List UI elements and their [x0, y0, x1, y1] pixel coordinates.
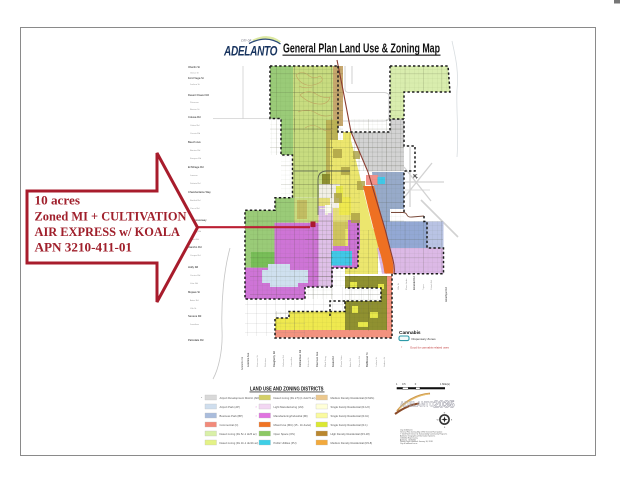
svg-text:Delicious: Delicious	[265, 357, 267, 367]
svg-text:Desert Living (DL 2.5) (1 du/2: Desert Living (DL 2.5) (1 du/2.5 ac)	[274, 396, 316, 400]
svg-text:Yucca Rd: Yucca Rd	[190, 208, 200, 210]
svg-text:Medium Density Residential (R-: Medium Density Residential (R-M/G)	[331, 396, 375, 400]
svg-text:Topaz: Topaz	[423, 284, 425, 290]
svg-text:Public Utilities (PU): Public Utilities (PU)	[274, 441, 297, 445]
svg-text:High Density Residential (R3-1: High Density Residential (R3-18)	[331, 432, 370, 436]
svg-text:Bovine St: Bovine St	[190, 108, 200, 111]
svg-text:Cactus Rd: Cactus Rd	[190, 274, 201, 277]
svg-text:Desert Flower Rd: Desert Flower Rd	[188, 93, 209, 97]
svg-text:Verbena Rd: Verbena Rd	[282, 355, 285, 367]
svg-text:AIR EXPRESS w/ KOALA: AIR EXPRESS w/ KOALA	[35, 225, 181, 239]
svg-text:Good for cannabis related uses: Good for cannabis related uses	[410, 346, 449, 350]
svg-text:Beech Ave: Beech Ave	[188, 140, 201, 144]
svg-text:Lilac Rd: Lilac Rd	[190, 283, 199, 285]
svg-text:General Plan Land Use & Zoning: General Plan Land Use & Zoning Map	[283, 41, 440, 56]
svg-text:Cannabis: Cannabis	[399, 330, 421, 336]
svg-text:Single Family Residential (R-1: Single Family Residential (R-1b)	[331, 414, 370, 418]
svg-text:Rancho Rd: Rancho Rd	[188, 245, 202, 249]
svg-text:Seneca Rd: Seneca Rd	[188, 314, 202, 318]
svg-text:Business Park (BP): Business Park (BP)	[220, 414, 243, 418]
svg-text:Dakota Rd: Dakota Rd	[190, 182, 201, 185]
svg-text:1 Mile(s): 1 Mile(s)	[440, 382, 450, 386]
svg-text:Dispensary Zones: Dispensary Zones	[412, 337, 437, 341]
svg-text:Mesa Linda: Mesa Linda	[406, 278, 408, 290]
svg-text:Desert Living (DL 5c-1 du/5 ac: Desert Living (DL 5c-1 du/5 ac)	[220, 432, 257, 436]
svg-text:Emerald Rd: Emerald Rd	[412, 276, 416, 290]
svg-text:Jonathan: Jonathan	[190, 323, 200, 326]
svg-text:Ford Vega St: Ford Vega St	[188, 76, 204, 80]
svg-text:Amethyst Rd: Amethyst Rd	[444, 287, 448, 302]
svg-text:W: W	[437, 419, 439, 421]
svg-text:Mojave St: Mojave St	[188, 290, 200, 294]
svg-text:Hermosa St: Hermosa St	[256, 355, 259, 367]
svg-text:Aster Rd: Aster Rd	[190, 299, 199, 302]
svg-text:Adelanto Rd: Adelanto Rd	[241, 356, 244, 370]
svg-text:Monte Vista: Monte Vista	[340, 355, 343, 367]
svg-text:Zoned MI + CULTIVATION: Zoned MI + CULTIVATION	[35, 209, 187, 223]
svg-text:Light Manufacturing (LM): Light Manufacturing (LM)	[274, 405, 304, 409]
svg-text:2035: 2035	[434, 399, 455, 411]
svg-text:Manufacturing/Industrial (MI): Manufacturing/Industrial (MI)	[274, 414, 308, 418]
svg-text:APN 3210-411-01: APN 3210-411-01	[35, 240, 133, 254]
svg-text:Aster Rd: Aster Rd	[349, 358, 352, 367]
svg-text:Palmdale Rd: Palmdale Rd	[188, 338, 204, 342]
svg-text:ADELANTO: ADELANTO	[223, 43, 277, 59]
svg-text:Desert Living (DL 1b-1 du/1b a: Desert Living (DL 1b-1 du/1b ac)	[220, 441, 259, 445]
svg-text:Mixed Use (MU) (15 - 1b du/ac): Mixed Use (MU) (15 - 1b du/ac)	[274, 423, 312, 427]
svg-text:Bellflower St: Bellflower St	[365, 352, 369, 367]
svg-text:Raccoon Ave: Raccoon Ave	[315, 351, 319, 367]
svg-text:Bonine Rd: Bonine Rd	[190, 150, 201, 152]
svg-text:Cassia Rd: Cassia Rd	[190, 133, 201, 135]
svg-text:El Mirage Rd: El Mirage Rd	[188, 165, 204, 169]
svg-text:Single Family Residential (R-1: Single Family Residential (R-1/2)	[331, 405, 370, 409]
svg-text:Daugherty Rd: Daugherty Rd	[272, 350, 276, 367]
svg-text:Single Family Residential (R-1: Single Family Residential (R-1)	[331, 423, 368, 427]
svg-text:Vilo St: Vilo St	[190, 307, 197, 310]
svg-text:Airport Park (AP): Airport Park (AP)	[220, 405, 240, 409]
svg-text:Cobalt Rd: Cobalt Rd	[430, 279, 433, 290]
svg-text:Casper Rd: Casper Rd	[190, 254, 201, 257]
svg-text:Cobre Rd: Cobre Rd	[190, 124, 200, 127]
svg-text:Leatrice Ave: Leatrice Ave	[246, 352, 250, 367]
svg-text:Holly Rd: Holly Rd	[188, 265, 199, 269]
svg-text:Commercial (C): Commercial (C)	[220, 423, 239, 427]
svg-text:Open Space (OS): Open Space (OS)	[274, 432, 295, 436]
svg-text:Villa St: Villa St	[397, 283, 400, 290]
svg-text:Kemper Rd: Kemper Rd	[190, 157, 202, 160]
svg-text:Richardson Rd: Richardson Rd	[298, 349, 302, 367]
svg-text:Bartlett Rd: Bartlett Rd	[190, 199, 201, 202]
svg-text:Medium Density Residential (R3: Medium Density Residential (R3-8)	[331, 441, 373, 445]
svg-text:Joshua St: Joshua St	[375, 357, 378, 367]
svg-text:10 acres: 10 acres	[35, 194, 81, 208]
svg-text:Colusa Rd: Colusa Rd	[188, 115, 201, 119]
svg-text:CITY OF: CITY OF	[241, 39, 252, 43]
svg-text:Oberlin St: Oberlin St	[188, 65, 200, 69]
svg-text:ADELANTO: ADELANTO	[400, 401, 434, 409]
svg-text:0.5: 0.5	[402, 382, 406, 386]
svg-text:Jones Ave: Jones Ave	[290, 356, 293, 367]
svg-text:Joshua St: Joshua St	[190, 83, 200, 86]
svg-text:Airport Development District (: Airport Development District (ADD)	[220, 396, 262, 400]
svg-text:Primrose: Primrose	[190, 101, 200, 104]
svg-text:Lindero St: Lindero St	[383, 357, 386, 367]
svg-text:City of adelanto.ca.us: City of adelanto.ca.us	[400, 442, 417, 445]
svg-text:Lawson: Lawson	[190, 175, 198, 177]
svg-text:Wind Song: Wind Song	[325, 356, 327, 367]
svg-text:Koala Rd: Koala Rd	[331, 356, 335, 367]
svg-text:Pamela Rd: Pamela Rd	[359, 355, 361, 367]
svg-text:Kalmia St: Kalmia St	[307, 357, 310, 367]
svg-text:Chamberlaine Way: Chamberlaine Way	[188, 190, 211, 194]
svg-text:Grove St: Grove St	[190, 72, 199, 75]
